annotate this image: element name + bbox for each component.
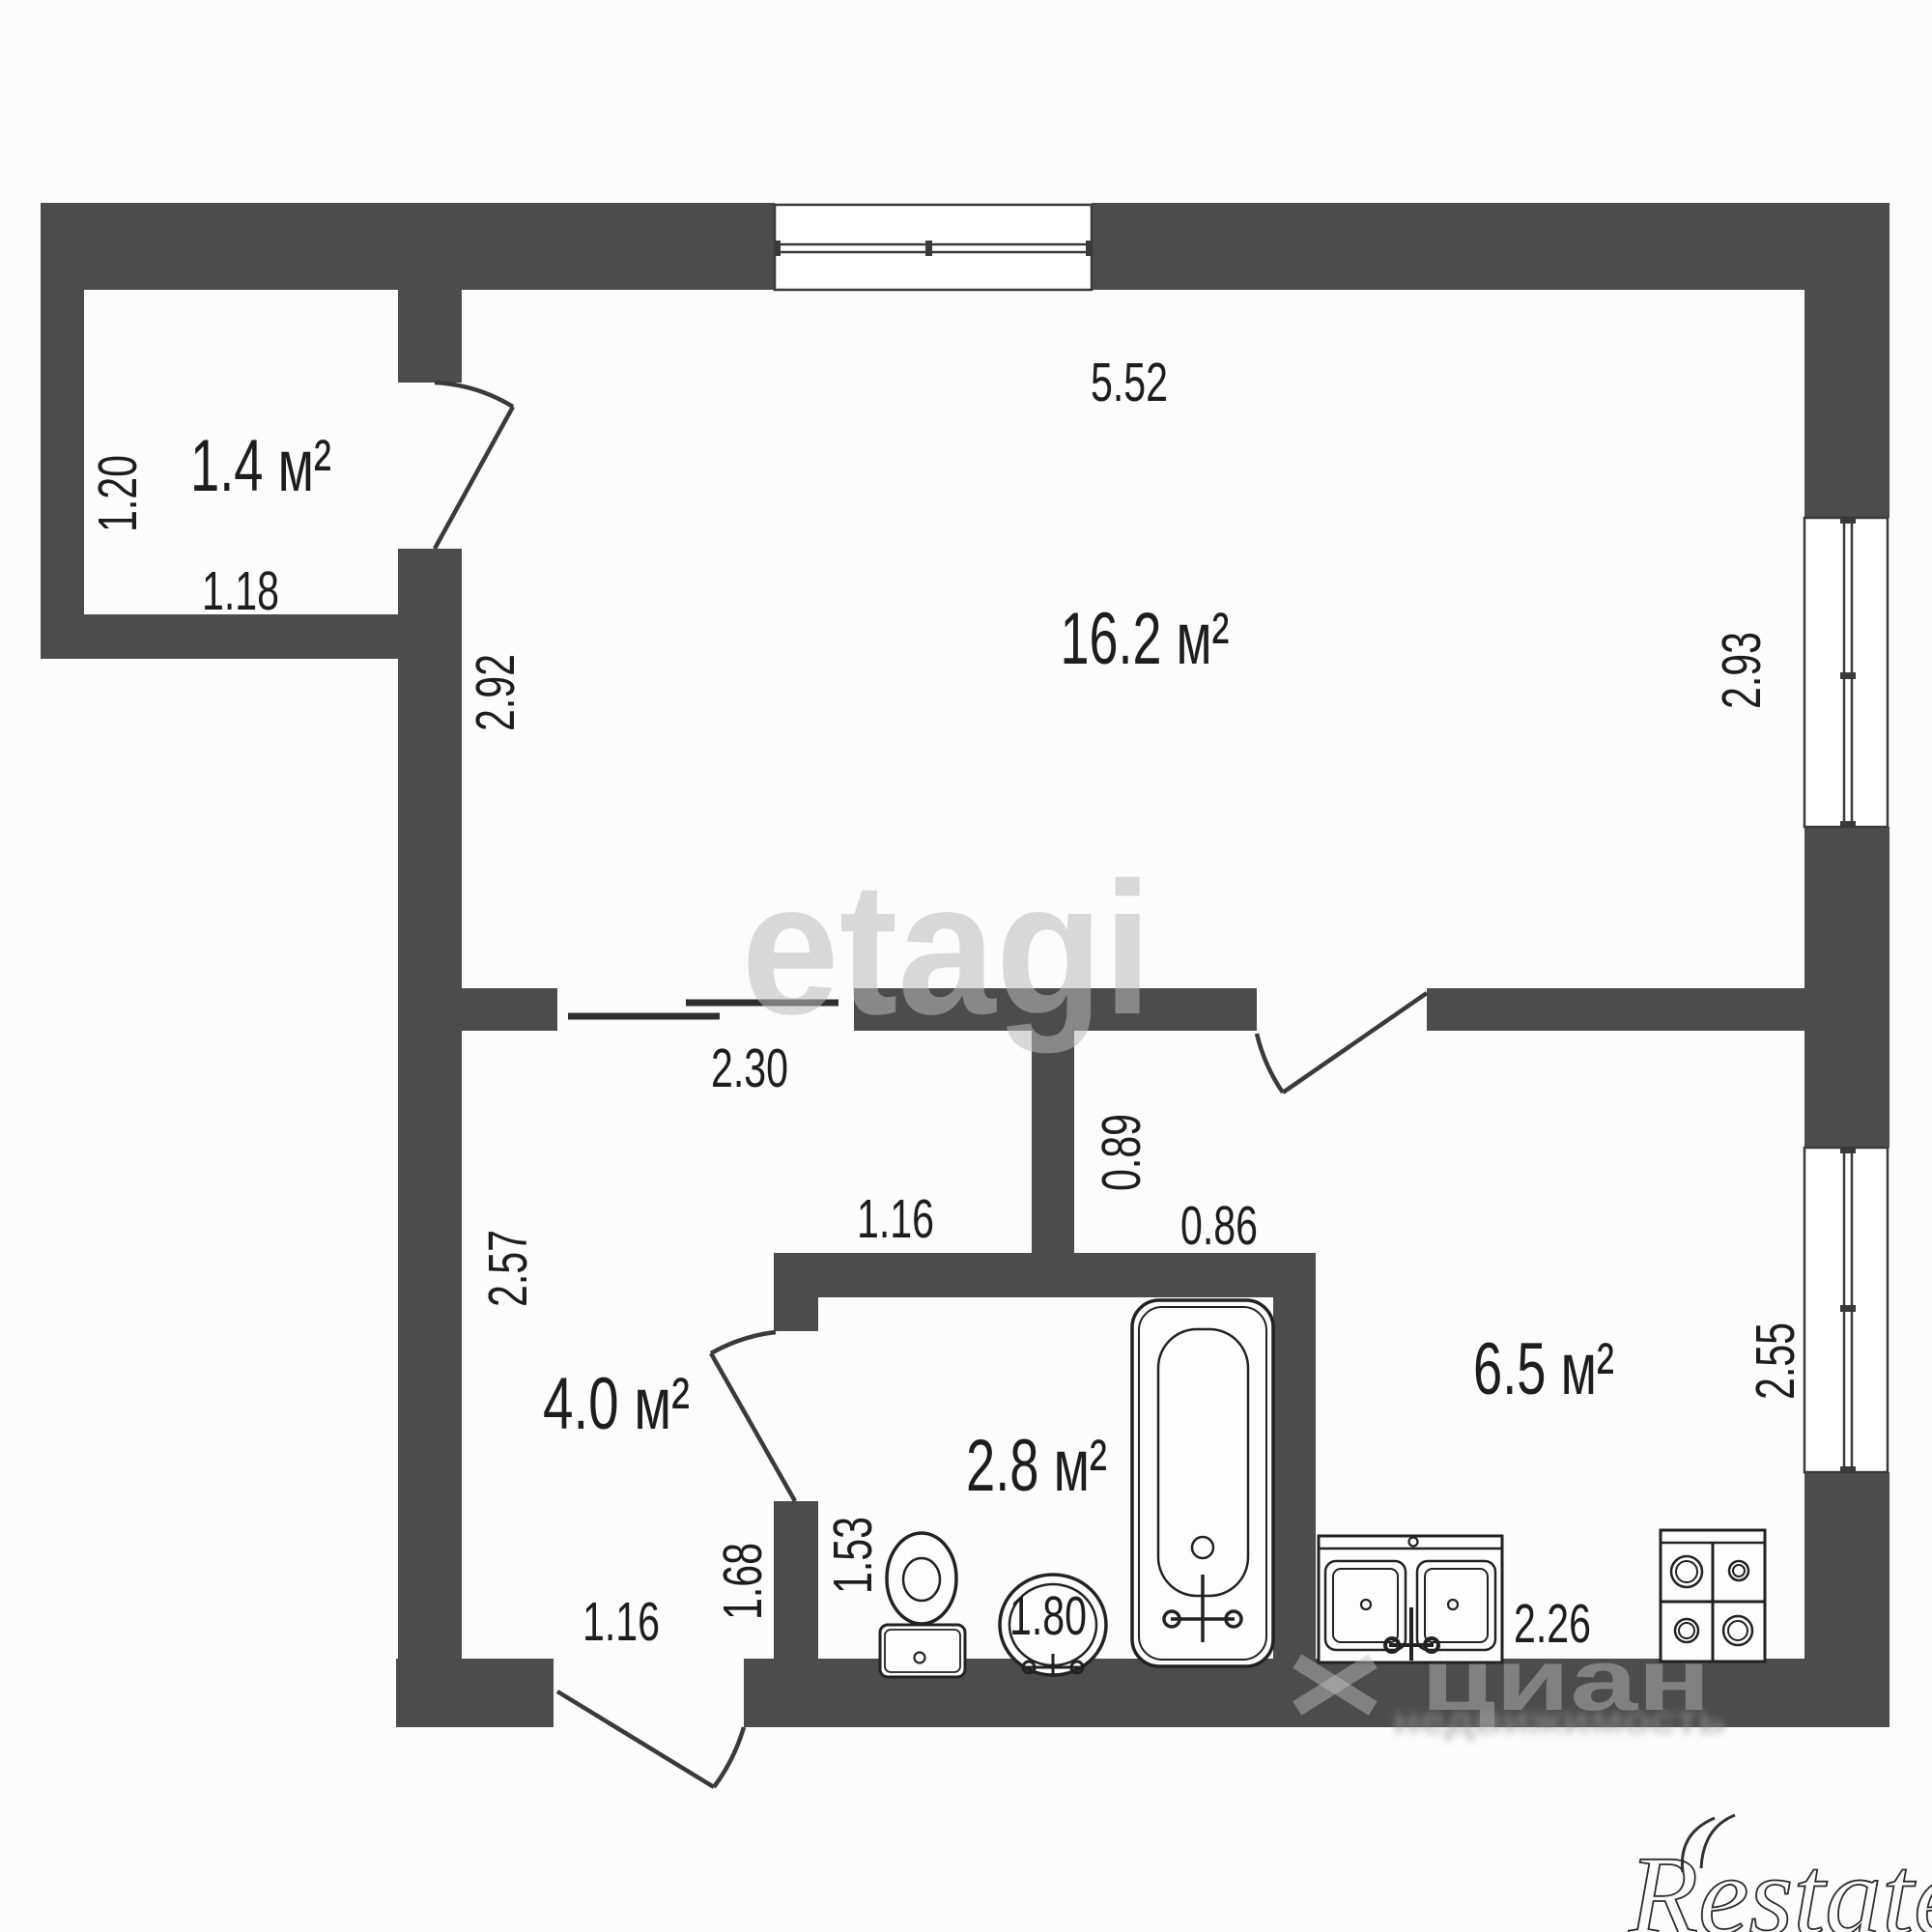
- svg-text:2.92: 2.92: [465, 654, 526, 731]
- svg-text:16.2 м²: 16.2 м²: [1061, 598, 1230, 680]
- svg-text:недвижимость: недвижимость: [1393, 1699, 1726, 1742]
- svg-text:1.68: 1.68: [712, 1543, 774, 1620]
- svg-text:1.80: 1.80: [1009, 1585, 1087, 1647]
- svg-text:1.16: 1.16: [857, 1188, 934, 1250]
- svg-text:1.20: 1.20: [87, 455, 149, 532]
- svg-text:1.4 м²: 1.4 м²: [190, 425, 331, 507]
- svg-text:2.30: 2.30: [711, 1037, 788, 1099]
- svg-text:0.86: 0.86: [1180, 1195, 1258, 1257]
- svg-text:6.5 м²: 6.5 м²: [1473, 1328, 1614, 1410]
- svg-text:5.52: 5.52: [1091, 352, 1168, 413]
- svg-text:1.18: 1.18: [202, 560, 279, 622]
- svg-text:0.89: 0.89: [1091, 1114, 1152, 1191]
- svg-text:2.93: 2.93: [1711, 632, 1773, 709]
- svg-text:2.57: 2.57: [477, 1230, 539, 1307]
- svg-text:etagi: etagi: [742, 843, 1152, 1054]
- svg-text:1.16: 1.16: [582, 1591, 660, 1653]
- svg-text:4.0 м²: 4.0 м²: [543, 1363, 690, 1445]
- svg-text:2.55: 2.55: [1745, 1322, 1806, 1400]
- svg-text:1.53: 1.53: [822, 1517, 884, 1594]
- svg-text:Restate: Restate: [1628, 1833, 1932, 1932]
- svg-text:2.8 м²: 2.8 м²: [966, 1425, 1107, 1507]
